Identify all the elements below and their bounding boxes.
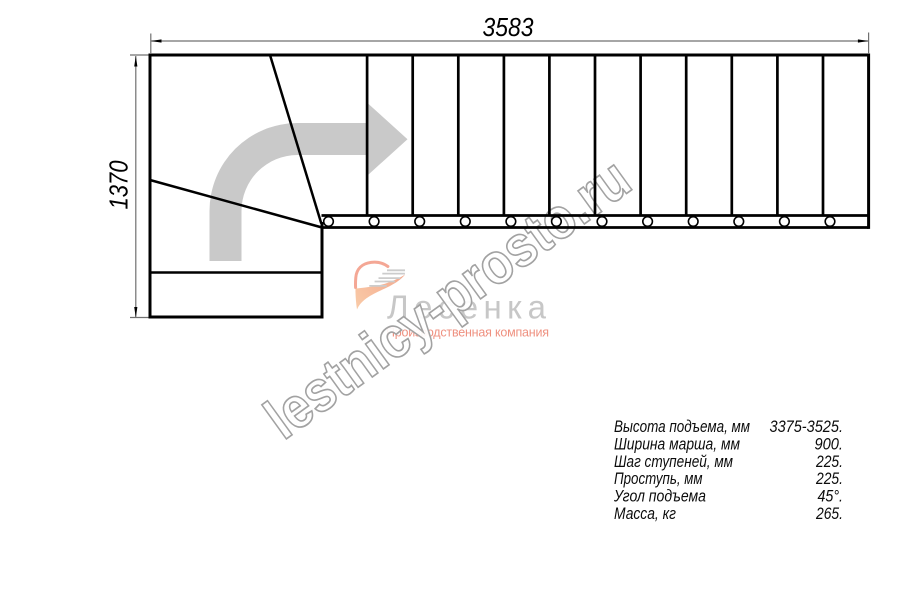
svg-text:225.: 225. xyxy=(815,469,843,488)
svg-text:Шаг ступеней, мм: Шаг ступеней, мм xyxy=(614,452,733,471)
svg-text:225.: 225. xyxy=(815,452,843,471)
svg-text:1370: 1370 xyxy=(104,160,134,209)
svg-text:3583: 3583 xyxy=(483,12,534,42)
svg-text:Масса, кг: Масса, кг xyxy=(614,504,676,523)
svg-text:Ширина марша, мм: Ширина марша, мм xyxy=(614,434,740,453)
svg-text:900.: 900. xyxy=(815,434,844,453)
svg-text:3375-3525.: 3375-3525. xyxy=(770,417,844,436)
svg-text:Высота подъема, мм: Высота подъема, мм xyxy=(614,417,750,436)
svg-text:Угол подъема: Угол подъема xyxy=(613,487,706,506)
svg-text:Проступь, мм: Проступь, мм xyxy=(614,469,703,488)
svg-text:45°.: 45°. xyxy=(818,487,844,506)
svg-text:265.: 265. xyxy=(815,504,843,523)
